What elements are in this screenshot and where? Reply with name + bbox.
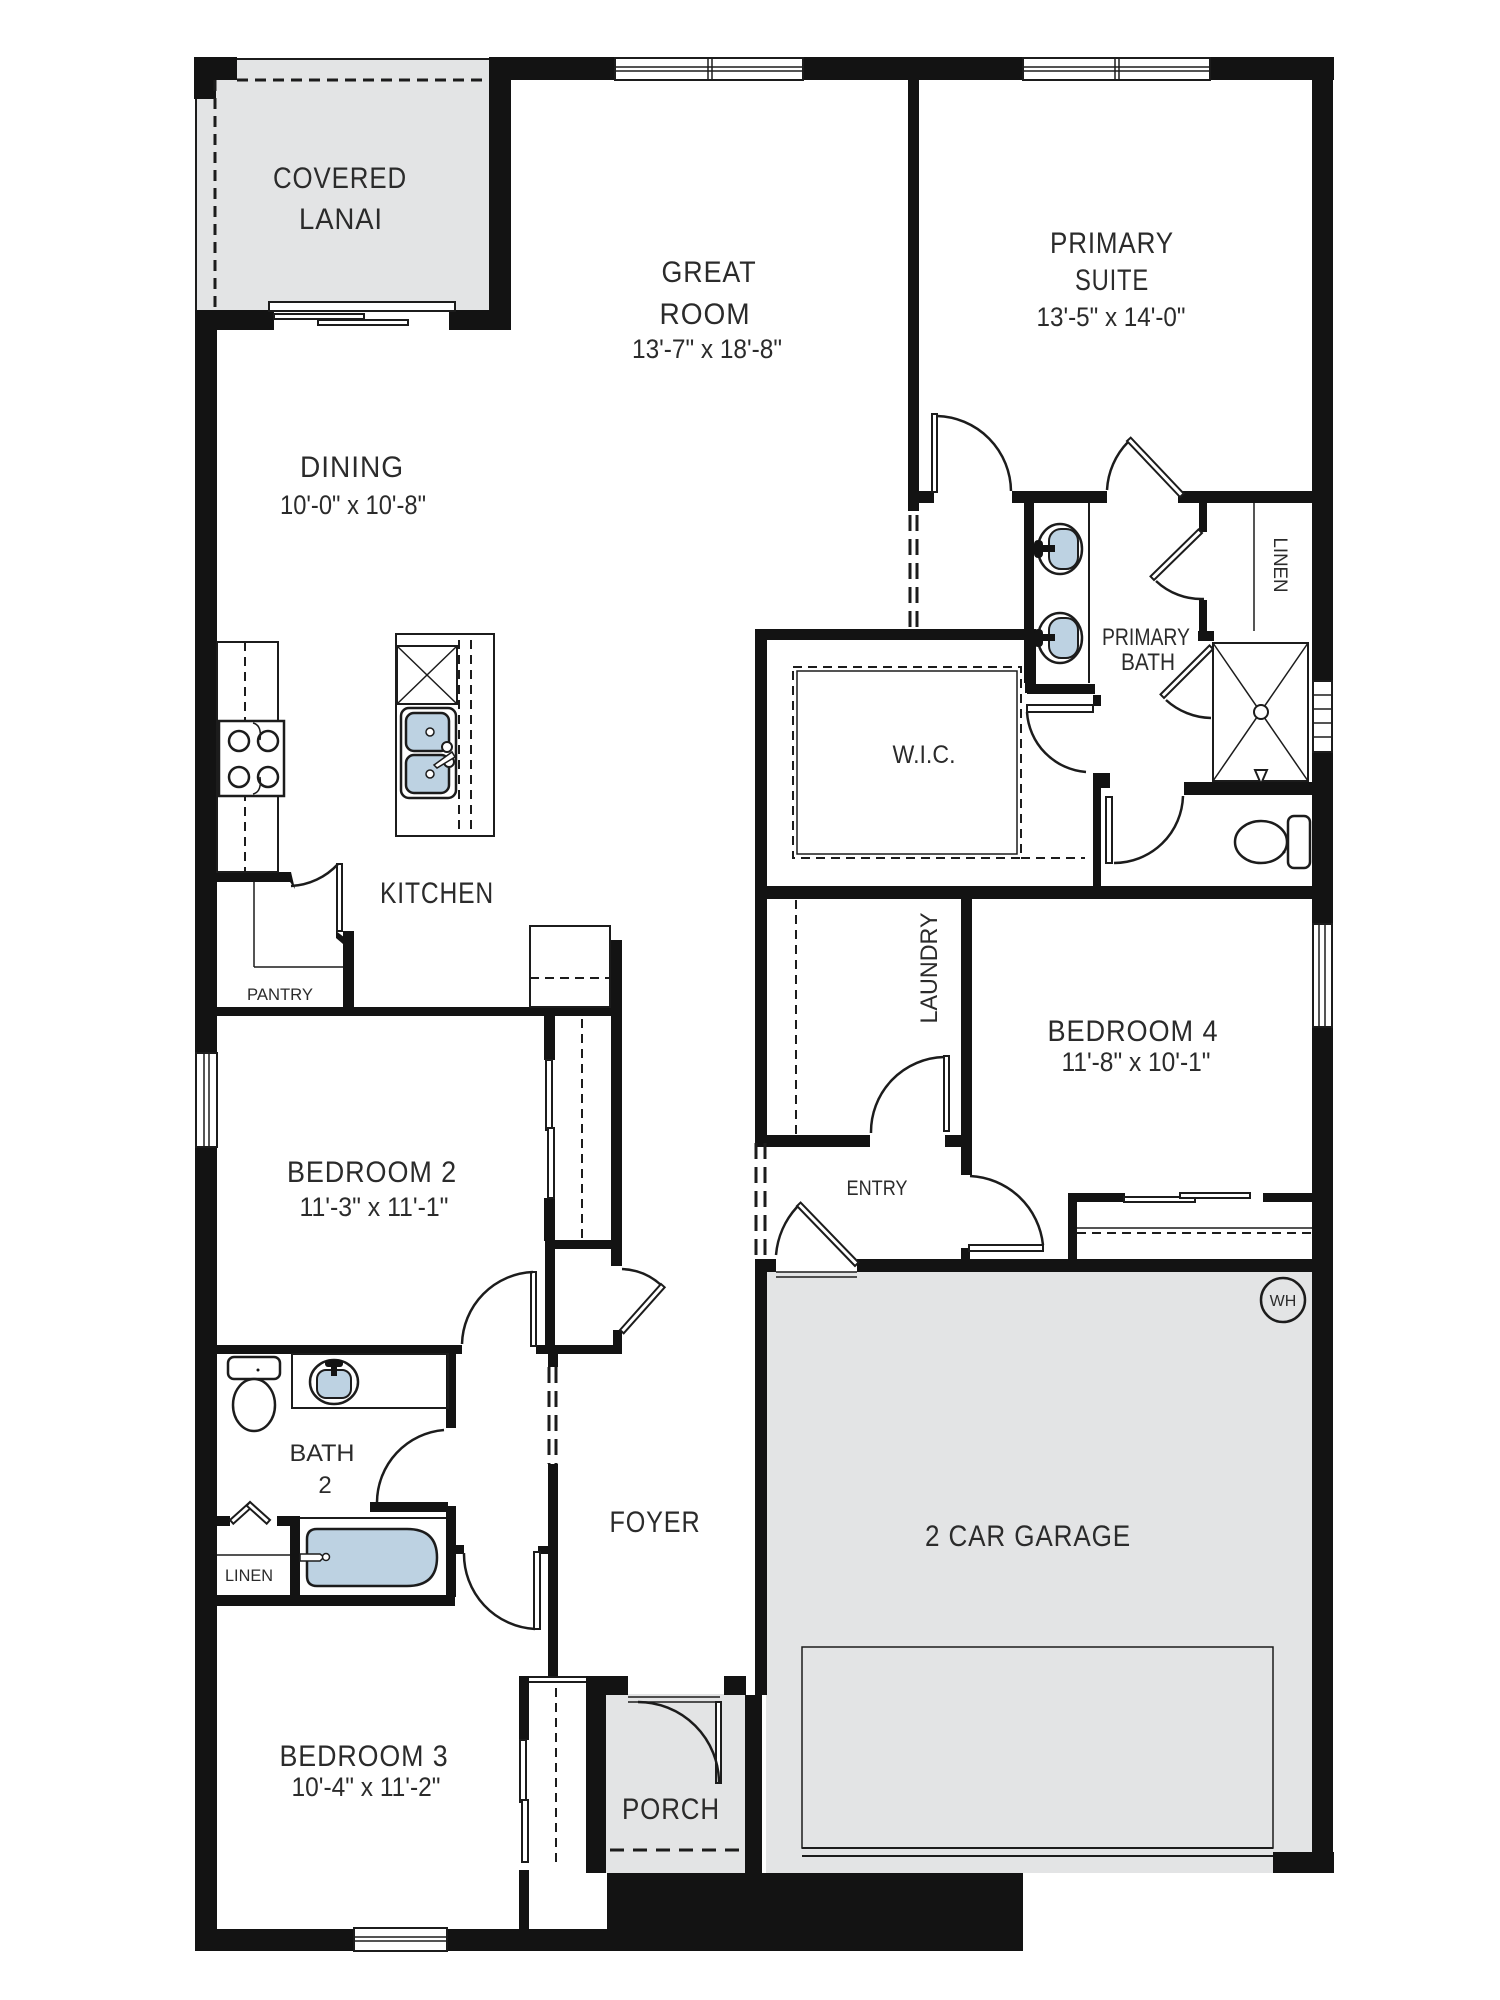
svg-text:LANAI: LANAI xyxy=(299,203,383,236)
svg-text:LINEN: LINEN xyxy=(1269,538,1290,593)
svg-text:COVERED: COVERED xyxy=(273,162,407,195)
svg-text:DINING: DINING xyxy=(300,451,404,484)
svg-text:SUITE: SUITE xyxy=(1075,264,1149,297)
svg-text:ROOM: ROOM xyxy=(660,298,751,331)
svg-text:WH: WH xyxy=(1270,1293,1297,1310)
svg-text:KITCHEN: KITCHEN xyxy=(380,877,494,910)
svg-text:2 CAR GARAGE: 2 CAR GARAGE xyxy=(925,1520,1131,1553)
svg-text:BEDROOM 2: BEDROOM 2 xyxy=(287,1156,457,1189)
svg-text:LINEN: LINEN xyxy=(225,1566,273,1585)
svg-text:FOYER: FOYER xyxy=(610,1506,701,1539)
svg-text:PANTRY: PANTRY xyxy=(247,985,313,1004)
svg-text:PRIMARY: PRIMARY xyxy=(1050,227,1174,260)
svg-text:BATH: BATH xyxy=(290,1440,355,1467)
svg-text:13'-7" x 18'-8": 13'-7" x 18'-8" xyxy=(632,334,782,364)
svg-text:ENTRY: ENTRY xyxy=(847,1177,908,1200)
svg-text:11'-8" x 10'-1": 11'-8" x 10'-1" xyxy=(1062,1047,1211,1077)
svg-text:BATH: BATH xyxy=(1121,649,1175,676)
svg-text:10'-4" x 11'-2": 10'-4" x 11'-2" xyxy=(292,1772,441,1802)
svg-text:W.I.C.: W.I.C. xyxy=(893,741,956,769)
svg-text:11'-3" x 11'-1": 11'-3" x 11'-1" xyxy=(300,1192,449,1222)
svg-text:13'-5" x 14'-0": 13'-5" x 14'-0" xyxy=(1037,302,1186,332)
svg-text:10'-0" x 10'-8": 10'-0" x 10'-8" xyxy=(280,490,426,520)
svg-text:PORCH: PORCH xyxy=(622,1793,720,1826)
svg-text:LAUNDRY: LAUNDRY xyxy=(916,913,943,1024)
svg-text:BEDROOM 4: BEDROOM 4 xyxy=(1048,1015,1219,1048)
svg-text:PRIMARY: PRIMARY xyxy=(1102,624,1190,651)
svg-text:BEDROOM 3: BEDROOM 3 xyxy=(280,1740,449,1773)
svg-text:GREAT: GREAT xyxy=(662,256,757,289)
svg-text:2: 2 xyxy=(318,1472,331,1499)
